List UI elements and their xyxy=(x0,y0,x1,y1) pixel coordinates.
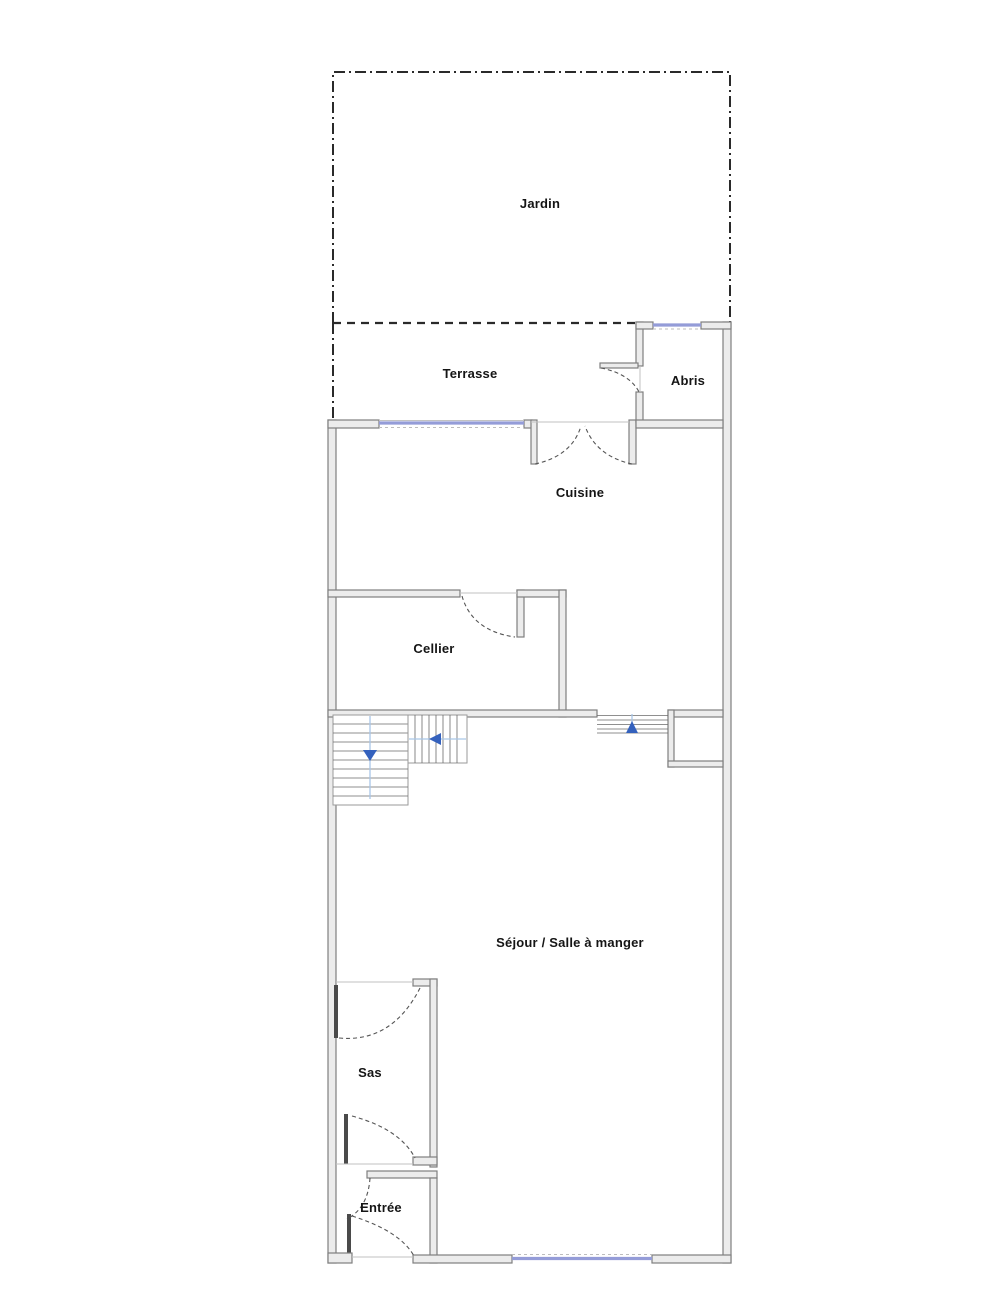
steps-up-arrow-icon xyxy=(626,721,638,733)
garden-boundary xyxy=(333,72,730,420)
room-label-cuisine: Cuisine xyxy=(556,485,604,500)
room-label-cellier: Cellier xyxy=(413,641,454,656)
floor-plan-page: Jardin Terrasse Abris Cuisine Cellier Sé… xyxy=(0,0,1000,1303)
sas-wall-right xyxy=(430,979,437,1167)
floor-plan: Jardin Terrasse Abris Cuisine Cellier Sé… xyxy=(0,0,1000,1303)
room-label-jardin: Jardin xyxy=(520,196,560,211)
window-abris xyxy=(653,325,701,329)
abris-wall-top-right xyxy=(701,322,731,329)
cellier-wall-right xyxy=(559,590,566,717)
sas-wall-bottom-stub xyxy=(413,1157,437,1165)
entree-wall-top xyxy=(367,1171,437,1178)
french-door-left-jamb xyxy=(531,420,537,464)
wall-bottom-right xyxy=(652,1255,731,1263)
room-label-sejour: Séjour / Salle à manger xyxy=(496,935,644,950)
closet-wall-left xyxy=(668,710,674,767)
wall-bottom-left xyxy=(328,1253,352,1263)
windows xyxy=(379,325,701,1259)
room-label-abris: Abris xyxy=(671,373,705,388)
abris-door-leaf xyxy=(600,363,638,368)
french-door-right-swing-arc xyxy=(585,426,632,464)
room-labels: Jardin Terrasse Abris Cuisine Cellier Sé… xyxy=(358,196,705,1215)
wall-bottom-mid xyxy=(413,1255,512,1263)
entrance-door-swing-arc xyxy=(352,1216,414,1256)
french-door-left-swing-arc xyxy=(535,426,581,464)
french-door-right-jamb xyxy=(629,420,636,464)
cellier-door-swing-arc xyxy=(462,596,515,637)
staircase xyxy=(333,714,668,805)
room-label-terrasse: Terrasse xyxy=(443,366,498,381)
room-label-entree: Entrée xyxy=(360,1200,402,1215)
cellier-wall-top xyxy=(328,590,460,597)
door-arcs xyxy=(339,368,640,1256)
abris-door-swing-arc xyxy=(601,368,640,394)
sas-top-door-swing-arc xyxy=(339,988,420,1038)
sas-bottom-door-swing-arc xyxy=(352,1116,415,1158)
wall-top-left xyxy=(328,420,379,428)
small-steps xyxy=(597,714,668,733)
abris-wall-top-left xyxy=(636,322,653,329)
closet-wall-bottom xyxy=(668,761,723,767)
closet-wall-top xyxy=(668,710,723,717)
abris-wall-left-lower xyxy=(636,392,643,422)
wall-left xyxy=(328,420,336,1263)
wall-right xyxy=(723,322,731,1263)
sas-top-door-leaf xyxy=(334,985,338,1038)
window-terrasse xyxy=(379,421,524,428)
sas-bottom-door-leaf xyxy=(344,1114,348,1164)
room-label-sas: Sas xyxy=(358,1065,382,1080)
entrance-door-leaf xyxy=(347,1214,351,1258)
window-sejour xyxy=(512,1255,652,1259)
abris-wall-bottom xyxy=(636,420,723,428)
entree-wall-right xyxy=(430,1178,437,1263)
